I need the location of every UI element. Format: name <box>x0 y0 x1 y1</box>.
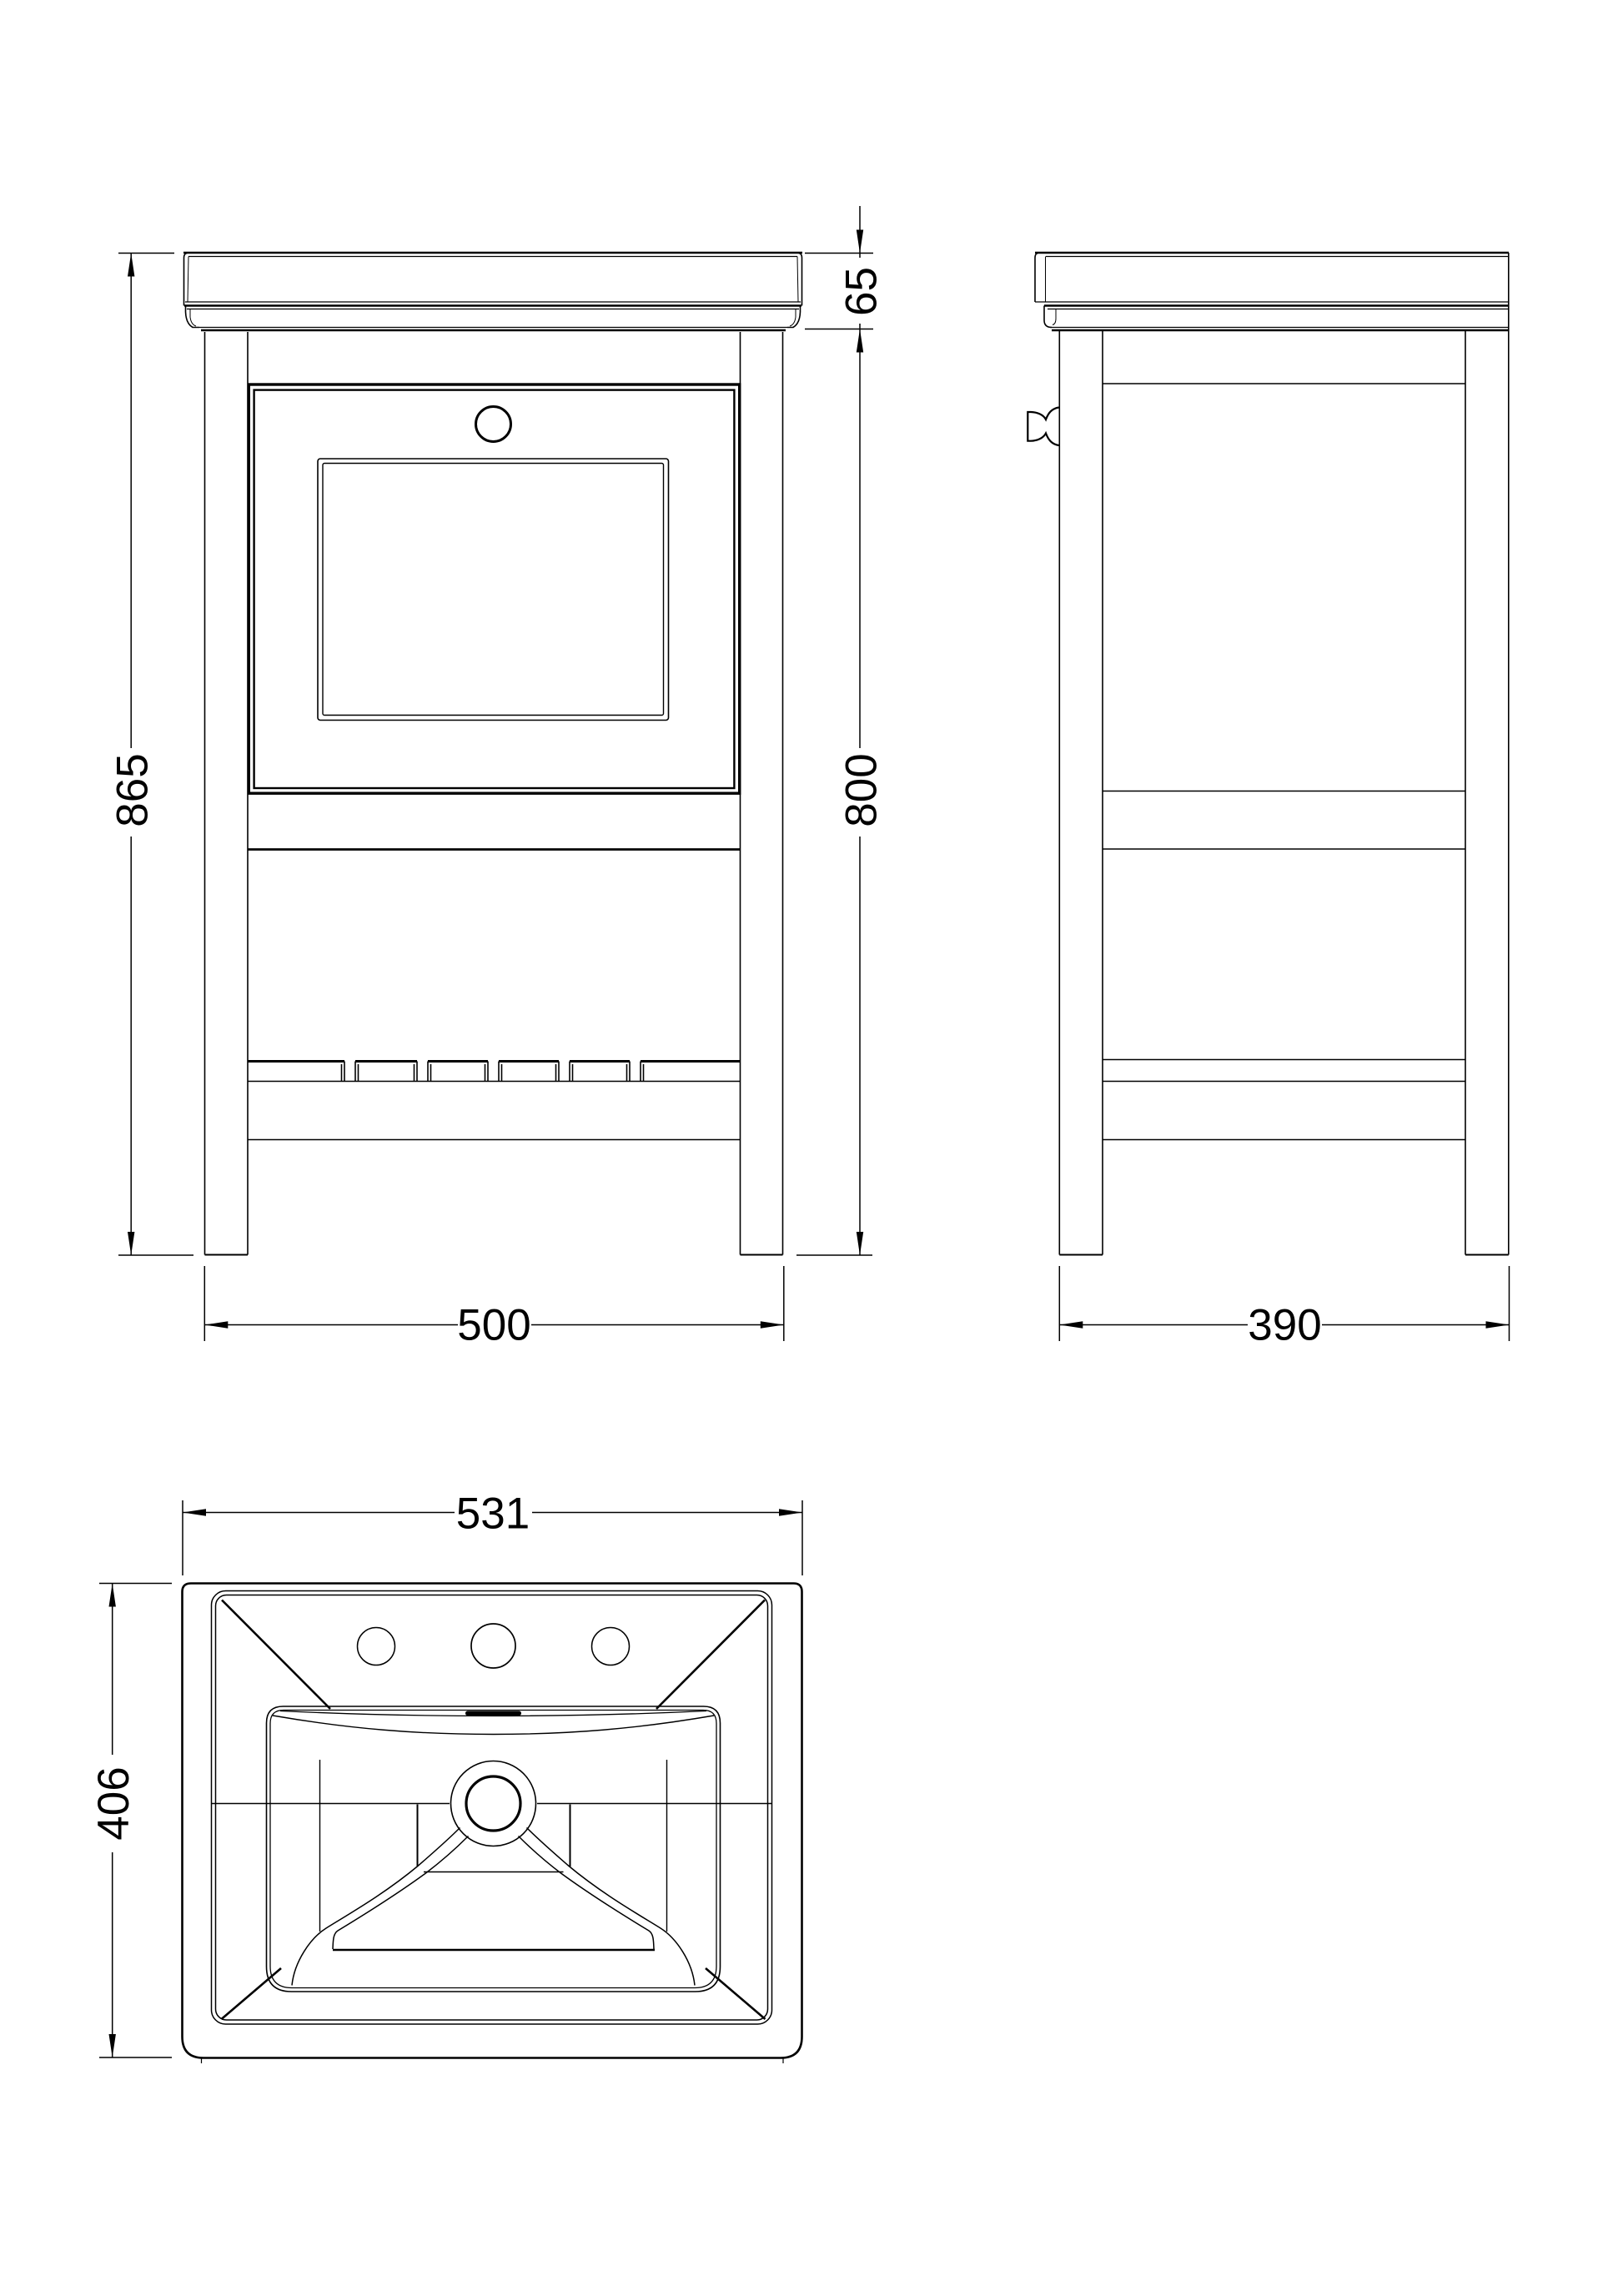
svg-text:800: 800 <box>837 753 887 826</box>
svg-text:390: 390 <box>1248 1301 1321 1350</box>
svg-text:865: 865 <box>108 753 158 826</box>
svg-text:406: 406 <box>89 1766 138 1840</box>
svg-text:531: 531 <box>456 1490 530 1539</box>
svg-text:500: 500 <box>457 1301 530 1350</box>
svg-text:65: 65 <box>837 267 887 316</box>
